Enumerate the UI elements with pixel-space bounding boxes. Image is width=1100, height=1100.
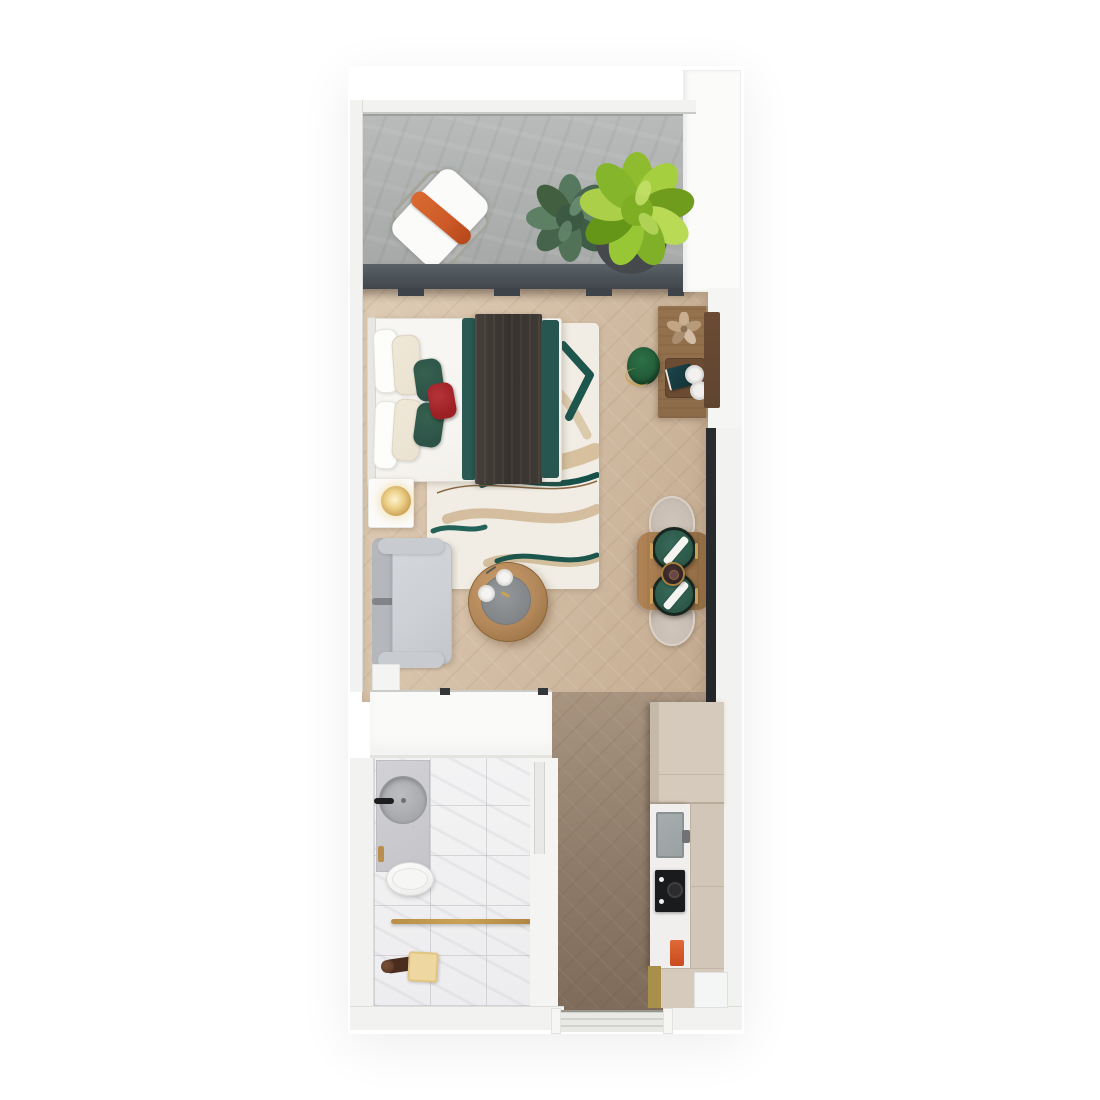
balcony-left-wall (350, 100, 363, 292)
sofa-side-table (372, 664, 400, 692)
sofa-armrest (378, 538, 444, 554)
sofa (372, 538, 454, 668)
cup (478, 585, 495, 602)
cup (496, 569, 513, 586)
coffee-table (468, 562, 548, 642)
fork (650, 543, 653, 559)
desk-tray (665, 358, 705, 398)
cooktop-knob (659, 877, 664, 882)
toilet (386, 862, 434, 896)
blanket-teal-edge (541, 320, 559, 478)
brass-table-lamp (381, 486, 411, 516)
door-frame-tick (586, 288, 612, 296)
napkin (662, 535, 689, 565)
decor-sprig (486, 566, 497, 575)
sofa-cushion-gap (372, 598, 394, 605)
beige-towel (407, 951, 439, 983)
balcony-top-wall (350, 100, 696, 114)
bottom-wall-right (664, 1006, 742, 1030)
kitchen-cabinet-strip (690, 804, 724, 970)
bathroom-door (534, 762, 545, 854)
brass-towel-bar (391, 919, 533, 924)
potted-plant-lime (575, 148, 697, 280)
cooktop-knob (659, 899, 664, 904)
shower-knob (381, 960, 394, 973)
entry-door-threshold (558, 1010, 666, 1032)
green-stool (627, 347, 660, 385)
dried-flower-decor (666, 312, 702, 346)
bed-pillow-red (426, 381, 458, 421)
burner (667, 882, 683, 898)
teapot (661, 562, 685, 586)
brass-paper-holder (378, 846, 384, 862)
door-frame-tick (398, 288, 424, 296)
bathroom-bottom-wall (350, 1006, 564, 1030)
left-exterior-wall (350, 288, 363, 692)
sofa-seat (392, 542, 452, 664)
red-kitchen-item (670, 940, 684, 966)
knife (695, 543, 698, 559)
bed-runner-blanket (462, 314, 559, 484)
door-frame-tick (494, 288, 520, 296)
black-faucet (374, 798, 394, 804)
mustard-accent-panel (648, 966, 661, 1008)
blanket-dark-center (475, 314, 542, 484)
kitchen-faucet (682, 830, 690, 843)
white-appliance (694, 972, 728, 1008)
wall-junction-tick (538, 688, 548, 695)
fork (650, 588, 653, 604)
bathroom-left-wall (350, 758, 374, 1008)
knife (695, 588, 698, 604)
kitchen-sink (656, 812, 684, 858)
desk-bench-panel (704, 312, 720, 408)
floor-plan-canvas (0, 0, 1100, 1100)
wardrobe (370, 690, 552, 758)
door-frame-tick (668, 288, 684, 296)
kitchen-tall-cabinet (650, 702, 724, 804)
wall-junction-tick (440, 688, 450, 695)
cooktop (655, 870, 685, 912)
right-window-strip (706, 428, 716, 704)
blanket-teal-edge (462, 318, 476, 480)
